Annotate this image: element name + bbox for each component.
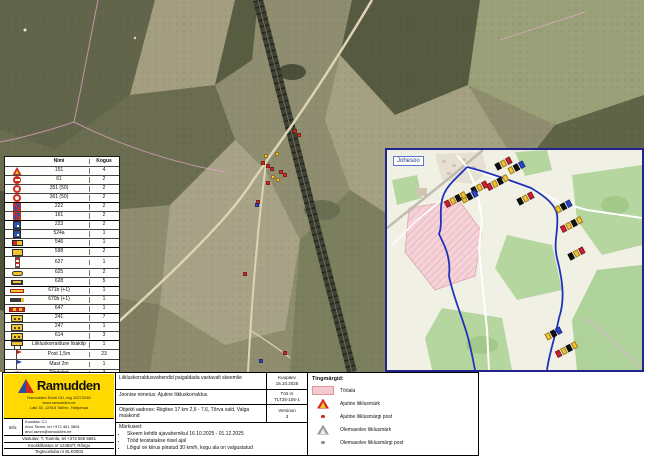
company-info-line3: arvo.tamm@ramudden.ee [25,430,112,435]
sign-qty: 1 [89,231,118,237]
remark-item: Tööd teostatakse öisel ajal [127,438,304,444]
sign-name: 247 [29,324,89,330]
sign-qty: 2 [89,177,118,183]
sign-qty: 2 [89,213,118,219]
sign-table-row: Post 1,5m23 [5,349,119,359]
sign-name: 625 [29,270,89,276]
sign-table-row: 351 (50)2 [5,184,119,193]
drawing-name: Joonise nimetus: Ajutine liikluskorraldu… [116,390,266,404]
drawing-info-block: Liikluskorraldusvahendid paigaldada vast… [116,372,308,456]
sign-qty: 3 [89,333,118,339]
symbol-legend-item: Olemasolev liiklusmärgi post [312,436,474,449]
sign-name: Post 1,5m [29,352,89,358]
company-block: Ramudden Ramudden Eesti OÜ, reg 10272040… [2,372,116,456]
symbol-legend-item: Olemasolev liiklusmärk [312,423,474,436]
lg-pink-icon [312,386,334,395]
bar-yr-sign-icon [12,240,23,246]
sign-table-row: 6271 [5,256,119,268]
sign-table-row: 2417 [5,313,119,322]
company-address-line3: Laki 30, 12915 Tallinn, Harjumaa [27,405,91,410]
sign-name: 670b (+1) [29,297,89,303]
yellow-sign-marker [275,152,279,156]
drawing-name-value: Ajutine liikluskorraldus. [158,392,209,398]
version-value: 3 [267,414,307,420]
sign-name: 546 [29,240,89,246]
lg-dot-gray-icon [321,441,325,445]
sign-table-row: 1612 [5,211,119,220]
pole-sign-icon [15,257,20,268]
sign-table-header: Nimi Kogus [5,157,119,166]
sign-name: 628 [29,279,89,285]
lg-tri-red-icon [317,399,329,409]
ramudden-triangle-logo-icon [18,379,34,393]
company-info-rows: Info: Koostas: CJ Arvo Tamm, tel +372 46… [4,418,114,454]
rect-dk-sign-icon [11,280,23,285]
sign-qty: 1 [89,297,118,303]
sign-table-row: Liikluskorralduse lisakilp1 [5,340,119,349]
sign-qty: 1 [89,240,118,246]
yellow-sign-marker [264,154,268,158]
symbol-legend-label: Olemasolev liiklusmärk [340,427,391,433]
circ-ring-sign-icon [13,194,21,202]
remark-item: Skeem kehtib ajavahemikul 16.10.2025 - 0… [127,431,304,437]
sign-qty: 2 [89,222,118,228]
sign-name: Liikluskorralduse lisakilp [29,342,89,348]
blue-sign-marker [255,203,259,207]
sign-qty: 2 [89,249,118,255]
bar-ylong-sign-icon [10,289,24,293]
sign-qty: 2 [89,186,118,192]
remark-item: Lõigul on kiirus piiratud 30 km/h, kogu … [127,445,304,451]
sign-qty: 5 [89,279,118,285]
red-sign-marker [283,173,287,177]
sign-table-body: 1514612351 (50)2361 (50)2222216122232524… [5,166,119,378]
sign-name: 161 [29,213,89,219]
red-sign-marker [283,351,287,355]
yellow-sign-marker [276,178,280,182]
date-value: 16.10.2025 [267,381,307,387]
yellow-sign-marker [271,175,275,179]
sign-qty: 1 [89,362,118,368]
inset-overview-map: Johesoo [385,148,644,372]
sign-quantity-table: Nimi Kogus 1514612351 (50)2361 (50)22222… [4,156,120,379]
symbol-legend-title: Tingmärgid: [312,376,474,382]
sign-table-row: 6252 [5,268,119,277]
object-address: Objekti aadress: Riigitee 17 km 2,6 - 7,… [116,405,266,422]
sign-name: 223 [29,222,89,228]
sign-qty: 1 [89,324,118,330]
symbol-legend-label: Tööala [340,388,355,394]
sign-qty: 1 [89,342,118,348]
sign-table-qty-header: Kogus [89,159,118,165]
company-license-line: Tegevusluba nr ELK0003 [4,448,114,454]
company-logo-box: Ramudden Ramudden Eesti OÜ, reg 10272040… [4,374,114,418]
sign-qty: 7 [89,315,118,321]
sign-table-row: 2471 [5,322,119,331]
sign-table-row: 6471 [5,304,119,313]
sign-qty: 1 [89,306,118,312]
sign-name: 598 [29,249,89,255]
sign-table-row: 5461 [5,238,119,247]
lg-dot-red-icon [321,415,325,419]
sq-blue-sign-icon [13,230,21,238]
lg-tri-gray-icon [317,425,329,435]
bar-striped-sign-icon [9,307,25,312]
symbol-legend: Tingmärgid: TööalaAjutine liiklusmärkAju… [308,372,479,456]
title-block: Ramudden Ramudden Eesti OÜ, reg 10272040… [2,372,479,456]
sign-name: 361 (50) [29,195,89,201]
sign-qty: 4 [89,168,118,174]
sign-qty: 2 [89,204,118,210]
sign-table-name-header: Nimi [29,159,89,165]
company-address: Ramudden Eesti OÜ, reg 10272040 www.ramu… [27,395,91,410]
red-sign-marker [266,181,270,185]
sign-name: 351 (50) [29,186,89,192]
sign-qty: 1 [89,260,118,266]
remarks-label: Märkused: [119,424,304,430]
red-sign-marker [297,133,301,137]
remarks-section: Märkused: Skeem kehtib ajavahemikul 16.1… [116,423,307,453]
sq-blue-sign-icon [13,221,21,229]
sign-name: 241 [29,315,89,321]
sign-table-row: 1514 [5,166,119,175]
blue-sign-marker [259,359,263,363]
rect-y-sign-icon [12,249,23,256]
symbol-legend-item: Ajutine liiklusmärk [312,397,474,410]
sign-table-row: 361 (50)2 [5,193,119,202]
company-brand: Ramudden [37,378,100,393]
symbol-legend-items: TööalaAjutine liiklusmärkAjutine liiklus… [312,384,474,449]
board-sign-icon [11,341,23,349]
company-info-label: Info: [4,419,23,435]
symbol-legend-label: Ajutine liiklusmärgi post [340,414,392,420]
tri-red-sign-icon [13,167,22,175]
bar-dark-sign-icon [10,298,24,302]
sign-name: 524a [29,231,89,237]
sign-table-row: 2232 [5,220,119,229]
oval-y-sign-icon [12,271,23,276]
sign-qty: 2 [89,270,118,276]
job-number-value: TLT25-105-1 [267,397,307,403]
symbol-legend-item: Tööala [312,384,474,397]
circ-ring-sign-icon [13,185,21,193]
sign-table-row: 6143 [5,331,119,340]
sign-table-row: 524a1 [5,229,119,238]
flag-blue-sign-icon [12,360,22,369]
sign-qty: 2 [89,195,118,201]
inset-place-label: Johesoo [393,156,424,166]
sign-table-row: 671b (+1)1 [5,286,119,295]
sign-table-row: 5982 [5,247,119,256]
general-note: Liikluskorraldusvahendid paigaldada vast… [116,373,266,389]
inset-map-graphic [387,150,642,370]
rect-ydots-sign-icon [11,333,23,340]
sign-table-row: 612 [5,175,119,184]
rect-ydots-sign-icon [11,315,23,322]
sign-name: 61 [29,177,89,183]
flag-red-sign-icon [12,350,22,359]
sign-table-row: Mast 2m1 [5,359,119,369]
sign-table-row: 2222 [5,202,119,211]
sign-name: 647 [29,306,89,312]
sign-name: 222 [29,204,89,210]
sign-name: 671b (+1) [29,288,89,294]
sign-qty: 23 [89,352,118,358]
red-sign-marker [243,272,247,276]
drawing-name-label: Joonise nimetus: [119,392,157,398]
remarks-list: Skeem kehtib ajavahemikul 16.10.2025 - 0… [127,431,304,451]
sign-name: Mast 2m [29,362,89,368]
circ-noentry-sign-icon [13,176,21,184]
object-address-label: Objekti aadress: [119,407,155,413]
sign-table-row: 6285 [5,277,119,286]
sign-name: 151 [29,168,89,174]
sign-name: 614 [29,333,89,339]
sq-bluered-sign-icon [13,203,21,211]
ta-plan-sheet: Nimi Kogus 1514612351 (50)2361 (50)22222… [0,0,650,459]
symbol-legend-item: Ajutine liiklusmärgi post [312,410,474,423]
red-sign-marker [270,167,274,171]
symbol-legend-label: Olemasolev liiklusmärgi post [340,440,403,446]
sign-name: 627 [29,260,89,266]
sign-table-row: 670b (+1)1 [5,295,119,304]
sq-bluered-sign-icon [13,212,21,220]
rect-ydots-sign-icon [11,324,23,331]
sign-qty: 1 [89,288,118,294]
red-sign-marker [261,161,265,165]
symbol-legend-label: Ajutine liiklusmärk [340,401,380,407]
